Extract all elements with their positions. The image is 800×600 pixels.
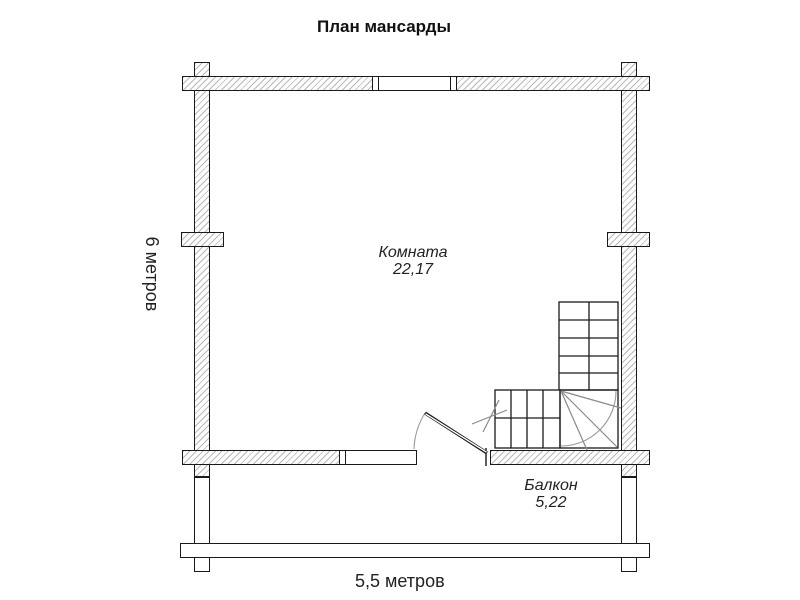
door-leaf-inner (426, 414, 487, 452)
room-name: Комната (351, 244, 475, 261)
floor-plan: План мансарды Комната 22,17 Балкон 5,22 … (0, 0, 800, 600)
width-dimension-label: 5,5 метров (355, 571, 445, 592)
staircase-winder (560, 390, 621, 450)
door-swing-arc (414, 413, 425, 449)
plan-linework (0, 0, 800, 600)
staircase-lower-flight (495, 390, 560, 448)
staircase-upper-flight (559, 302, 618, 390)
balcony-name: Балкон (489, 477, 613, 494)
balcony-label-block: Балкон 5,22 (489, 477, 613, 511)
plan-title: План мансарды (0, 17, 768, 37)
door (414, 413, 487, 466)
balcony-area: 5,22 (489, 494, 613, 511)
room-area: 22,17 (351, 261, 475, 278)
room-label-block: Комната 22,17 (351, 244, 475, 278)
height-dimension-label: 6 метров (142, 234, 162, 314)
